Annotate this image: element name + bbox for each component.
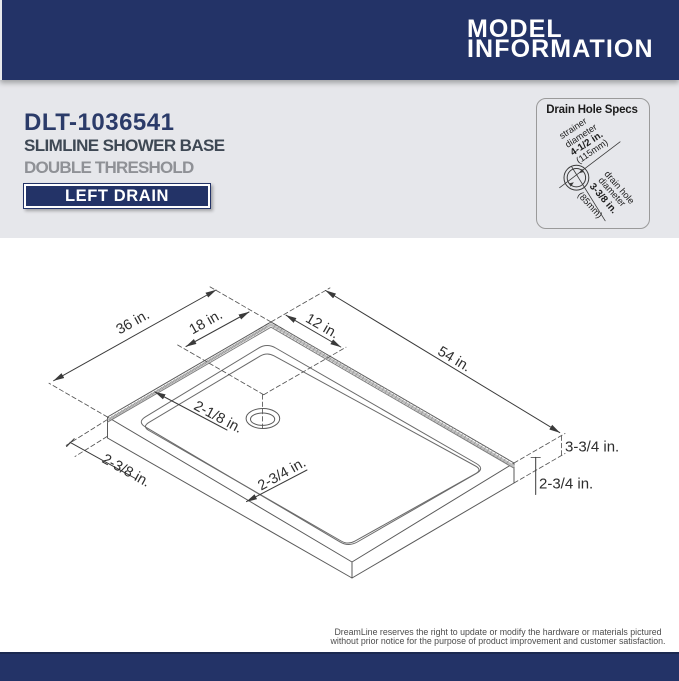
- svg-text:54 in.: 54 in.: [435, 344, 474, 376]
- svg-text:2-1/8 in.: 2-1/8 in.: [191, 398, 245, 437]
- svg-text:2-3/8 in.: 2-3/8 in.: [99, 451, 153, 490]
- svg-text:18 in.: 18 in.: [187, 307, 226, 338]
- svg-text:2-3/4 in.: 2-3/4 in.: [539, 476, 593, 493]
- svg-text:36 in.: 36 in.: [114, 307, 153, 338]
- svg-text:3-3/4 in.: 3-3/4 in.: [565, 439, 619, 456]
- svg-text:2-3/4 in.: 2-3/4 in.: [255, 455, 309, 494]
- svg-text:12 in.: 12 in.: [303, 311, 342, 343]
